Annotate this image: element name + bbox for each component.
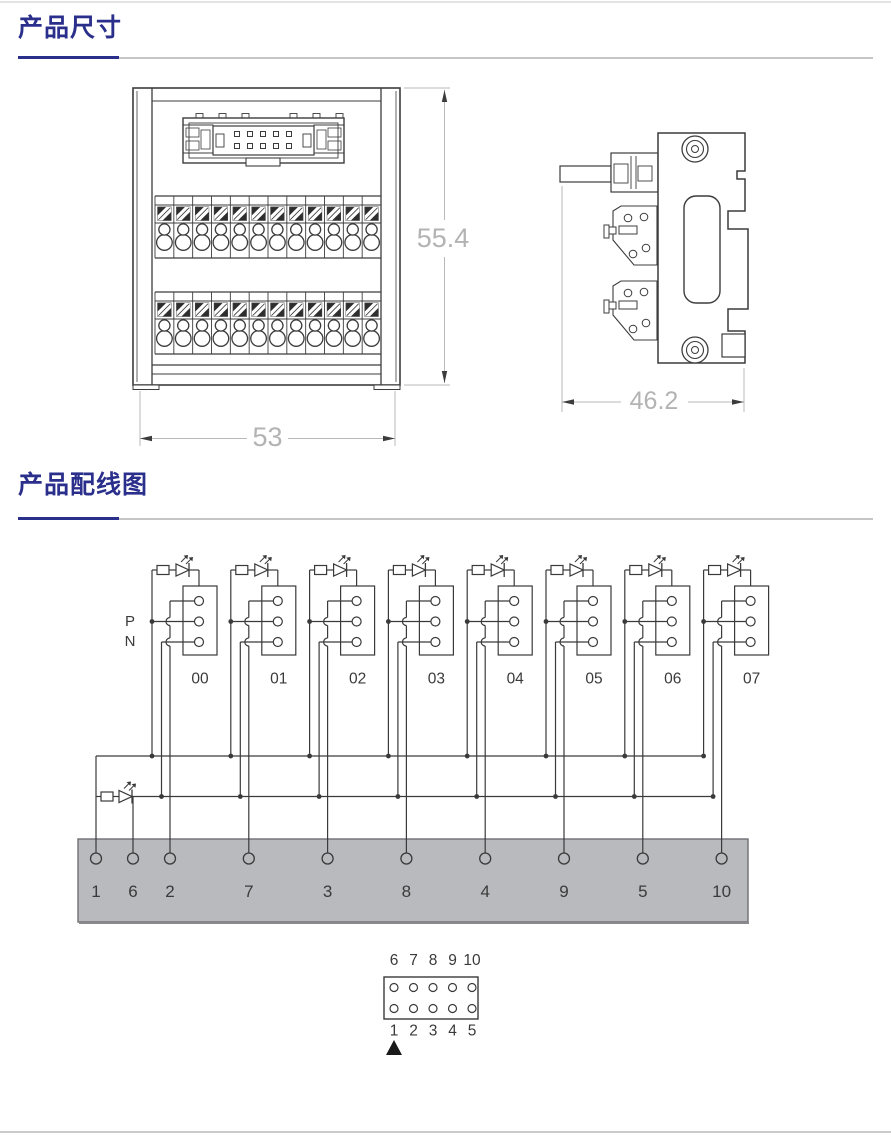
front-view: [133, 88, 400, 390]
junction-dot: [701, 754, 706, 759]
led-triangle: [412, 564, 425, 576]
channel-contact: [510, 638, 519, 647]
screw-boss: [682, 136, 708, 162]
dim-arrow: [442, 90, 447, 102]
channel-resistor: [551, 566, 563, 575]
clamp-opening-large: [194, 331, 210, 347]
channel-contact: [746, 617, 755, 626]
channel-label-03: 03: [428, 671, 445, 688]
clamp-opening-small: [178, 224, 189, 235]
clamp-opening-large: [251, 331, 267, 347]
dim-arrow: [383, 436, 395, 441]
channel-resistor: [630, 566, 642, 575]
channel-led: [728, 555, 745, 577]
channel-resistor: [472, 566, 484, 575]
junction-dot: [553, 794, 558, 799]
channel-contact: [195, 638, 204, 647]
clamp-opening-large: [232, 235, 248, 251]
clamp-opening-small: [309, 224, 320, 235]
clamp-opening-large: [364, 331, 380, 347]
page-top-rule: [0, 1, 891, 3]
n-bus-label: N: [125, 633, 136, 650]
clamp-opening-small: [272, 224, 283, 235]
terminal-row-1: [155, 196, 381, 258]
side-terminal-block: [604, 206, 657, 265]
screw-boss: [682, 337, 708, 363]
wiring-channel-03: 03: [386, 555, 453, 853]
channel-label-07: 07: [743, 671, 760, 688]
polygon: [613, 281, 657, 340]
junction-dot: [711, 794, 716, 799]
channel-led: [649, 555, 666, 577]
clamp-opening-large: [307, 331, 323, 347]
dim-width-53: 53: [140, 391, 395, 452]
dim-arrow: [732, 399, 744, 404]
clamp-opening-large: [175, 235, 191, 251]
clamp-opening-small: [347, 224, 358, 235]
side-terminal-block: [604, 281, 657, 340]
pinout-top-label-7: 7: [409, 952, 418, 969]
channel-contact: [195, 617, 204, 626]
dimension-drawing-svg: 5355.446.2: [0, 68, 891, 468]
bus-bar: 16273849510: [78, 839, 749, 923]
channel-contact: [589, 638, 598, 647]
clamp-opening-small: [309, 320, 320, 331]
channel-label-06: 06: [664, 671, 681, 688]
front-height-label: 55.4: [417, 223, 470, 253]
channel-resistor: [709, 566, 721, 575]
front-width-label: 53: [252, 422, 282, 452]
clamp-opening-small: [234, 224, 245, 235]
bus-terminal-label-2: 2: [165, 882, 174, 901]
junction-dot: [228, 754, 233, 759]
terminal-row-2: [155, 292, 381, 354]
clamp-opening-small: [215, 224, 226, 235]
wiring-channel-05: 05: [544, 555, 611, 853]
channel-label-02: 02: [349, 671, 366, 688]
junction-dot: [238, 794, 243, 799]
title-underline-accent: [18, 517, 119, 520]
wiring-channel-02: 02: [307, 555, 374, 853]
channel-label-00: 00: [191, 671, 209, 688]
bus-terminal-label-5: 5: [638, 882, 647, 901]
polarization-notch: [246, 158, 280, 166]
rect: [609, 227, 616, 234]
channel-label-01: 01: [270, 671, 287, 688]
clamp-opening-small: [272, 320, 283, 331]
side-view: [560, 133, 748, 363]
clamp-opening-small: [196, 320, 207, 331]
clamp-opening-large: [270, 235, 286, 251]
title-underline-accent: [18, 56, 119, 59]
clamp-opening-large: [326, 331, 342, 347]
led-triangle: [334, 564, 347, 576]
led-triangle: [649, 564, 662, 576]
clamp-opening-large: [326, 235, 342, 251]
bus-terminal-label-7: 7: [244, 882, 253, 901]
power-led-indicator: [96, 782, 136, 804]
clamp-opening-small: [215, 320, 226, 331]
clamp-opening-large: [345, 235, 361, 251]
channel-contact: [746, 638, 755, 647]
clamp-opening-large: [175, 331, 191, 347]
junction-dot: [159, 794, 164, 799]
clamp-opening-small: [253, 320, 264, 331]
channel-led: [491, 555, 508, 577]
clamp-opening-large: [194, 235, 210, 251]
clamp-opening-small: [234, 320, 245, 331]
clamp-opening-small: [366, 224, 377, 235]
channel-resistor: [157, 566, 169, 575]
wiring-channel-04: 04: [465, 555, 532, 853]
junction-dot: [150, 754, 155, 759]
pin1-marker-triangle: [386, 1040, 402, 1055]
bus-terminal-label-10: 10: [712, 882, 731, 901]
junction-dot: [317, 794, 322, 799]
clamp-opening-small: [291, 224, 302, 235]
channel-led: [570, 555, 587, 577]
junction-dot: [544, 754, 549, 759]
channel-contact: [589, 617, 598, 626]
rect: [604, 225, 609, 238]
bus-terminal-label-1: 1: [91, 882, 100, 901]
junction-dot: [622, 754, 627, 759]
channel-led: [334, 555, 351, 577]
channel-label-05: 05: [585, 671, 602, 688]
channel-contact: [589, 597, 598, 606]
channel-contact: [431, 638, 440, 647]
connector-arm: [560, 166, 611, 182]
channel-contact: [352, 597, 361, 606]
clamp-opening-large: [288, 235, 304, 251]
section-title-dimensions: 产品尺寸: [18, 13, 122, 43]
bus-bar-body: [78, 839, 748, 922]
clamp-opening-small: [291, 320, 302, 331]
pinout-top-label-10: 10: [463, 952, 481, 969]
section-title-wiring: 产品配线图: [18, 470, 148, 500]
led-triangle: [728, 564, 741, 576]
clamp-opening-large: [232, 331, 248, 347]
dim-height-55-4: 55.4: [404, 88, 469, 385]
connector-block: [611, 153, 658, 192]
channel-contact: [431, 617, 440, 626]
pinout-bottom-label-4: 4: [448, 1023, 457, 1040]
bus-terminal-label-8: 8: [402, 882, 411, 901]
channel-resistor: [393, 566, 405, 575]
channel-contact: [273, 597, 282, 606]
pinout-bottom-label-1: 1: [390, 1023, 399, 1040]
circle: [682, 136, 708, 162]
clamp-opening-large: [288, 331, 304, 347]
channel-contact: [667, 597, 676, 606]
dim-arrow: [562, 399, 574, 404]
left-foot: [133, 385, 159, 390]
channel-contact: [667, 617, 676, 626]
polygon: [613, 206, 657, 265]
title-underline-gray: [119, 518, 873, 520]
junction-dot: [632, 794, 637, 799]
channel-contact: [195, 597, 204, 606]
pinout-top-label-9: 9: [448, 952, 457, 969]
side-depth-label: 46.2: [630, 387, 679, 415]
channel-contact: [352, 638, 361, 647]
bus-terminal-label-3: 3: [323, 882, 332, 901]
pinout-bottom-label-5: 5: [468, 1023, 477, 1040]
clamp-opening-small: [178, 320, 189, 331]
clamp-opening-small: [328, 224, 339, 235]
led-triangle: [570, 564, 583, 576]
led-triangle: [255, 564, 268, 576]
clamp-opening-large: [213, 331, 229, 347]
channel-contact: [352, 617, 361, 626]
junction-dot: [465, 754, 470, 759]
clamp-opening-small: [196, 224, 207, 235]
bus-terminal-label-9: 9: [559, 882, 568, 901]
clamp-opening-small: [253, 224, 264, 235]
pinout-top-label-6: 6: [390, 952, 399, 969]
page-bottom-rule: [0, 1131, 891, 1133]
clamp-opening-large: [307, 235, 323, 251]
clamp-opening-large: [270, 331, 286, 347]
led-triangle: [491, 564, 504, 576]
dim-arrow: [442, 371, 447, 383]
pinout-bottom-label-3: 3: [429, 1023, 438, 1040]
bus-terminal-label-4: 4: [480, 882, 489, 901]
rect: [604, 300, 609, 313]
idc-connector: [183, 114, 344, 167]
pinout-bottom-label-2: 2: [409, 1023, 418, 1040]
clamp-opening-large: [157, 331, 173, 347]
wiring-diagram-svg: 162738495100001020304050607PN61728394105: [0, 530, 891, 1075]
clamp-opening-large: [345, 331, 361, 347]
rect: [609, 302, 616, 309]
led-triangle: [176, 564, 189, 576]
din-foot-tab: [722, 334, 745, 357]
power-resistor: [101, 792, 113, 801]
wiring-channel-07: 07: [701, 555, 768, 853]
channel-contact: [746, 597, 755, 606]
title-underline-gray: [119, 57, 873, 59]
dim-arrow: [140, 436, 152, 441]
channel-resistor: [315, 566, 327, 575]
pinout-body: [384, 977, 478, 1019]
wiring-channel-06: 06: [622, 555, 689, 853]
channel-contact: [510, 597, 519, 606]
clamp-opening-small: [159, 320, 170, 331]
bus-terminal-label-6: 6: [128, 882, 137, 901]
channel-resistor: [236, 566, 248, 575]
wiring-channel-01: 01: [228, 555, 295, 853]
datasheet-page: 产品尺寸 5355.446.2 产品配线图 162738495100001020…: [0, 0, 891, 1135]
right-foot: [374, 385, 400, 390]
junction-dot: [307, 754, 312, 759]
clamp-opening-large: [364, 235, 380, 251]
clamp-opening-large: [157, 235, 173, 251]
channel-contact: [273, 617, 282, 626]
junction-dot: [474, 794, 479, 799]
channel-contact: [510, 617, 519, 626]
clamp-opening-large: [251, 235, 267, 251]
clamp-opening-large: [213, 235, 229, 251]
channel-contact: [667, 638, 676, 647]
clamp-opening-small: [347, 320, 358, 331]
junction-dot: [396, 794, 401, 799]
clamp-opening-small: [366, 320, 377, 331]
connector-pinout: 61728394105: [384, 952, 481, 1055]
channel-led: [176, 555, 193, 577]
p-bus-label: P: [125, 613, 135, 630]
channel-label-04: 04: [507, 671, 525, 688]
side-body-outline: [658, 133, 748, 363]
clamp-opening-small: [328, 320, 339, 331]
channel-contact: [431, 597, 440, 606]
channel-contact: [273, 638, 282, 647]
channel-led: [412, 555, 429, 577]
junction-dot: [386, 754, 391, 759]
channel-led: [255, 555, 272, 577]
wiring-channel-00: 00: [150, 555, 217, 853]
clamp-opening-small: [159, 224, 170, 235]
pinout-top-label-8: 8: [429, 952, 438, 969]
led-triangle: [119, 791, 132, 803]
circle: [682, 337, 708, 363]
